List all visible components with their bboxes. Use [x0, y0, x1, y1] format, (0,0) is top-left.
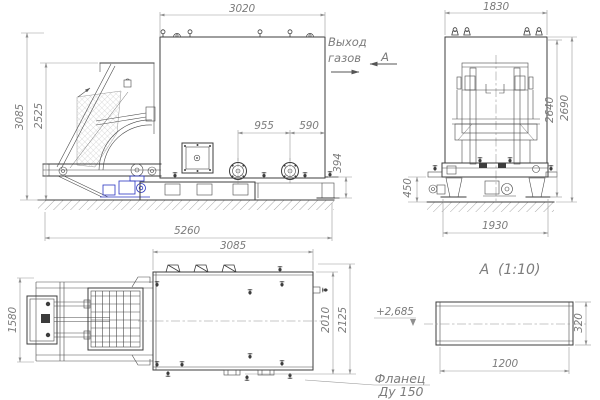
- grating: [88, 288, 143, 350]
- dim-1830: 1830: [483, 1, 509, 13]
- plan-view: 3085 1580 2010 2125: [7, 240, 356, 381]
- detail-title: А (1:10): [479, 262, 541, 278]
- dim-3085: 3085: [14, 104, 26, 130]
- dim-2010: 2010: [320, 307, 332, 333]
- drive-unit: [100, 176, 150, 197]
- side-view: 1830 2640 2690 450 1930: [402, 1, 577, 237]
- dim-955: 955: [254, 120, 274, 132]
- callout-text-2: Ду 150: [378, 384, 424, 399]
- view-a-arrow: А: [370, 50, 397, 64]
- furnace-body: [160, 37, 325, 178]
- gas-outlet-label: Выход газов: [328, 35, 367, 72]
- level-value: +2,685: [376, 306, 414, 318]
- base-frame: [140, 177, 339, 200]
- dim-320: 320: [573, 313, 585, 333]
- pipe-flange-left: [230, 158, 247, 184]
- ground-hatch: [38, 200, 334, 210]
- skip-rear: [457, 63, 533, 164]
- side-base: [428, 157, 557, 197]
- plan-dimensions: 3085 1580 2010 2125: [7, 240, 356, 374]
- plan-body: [138, 265, 328, 381]
- dim-3085-plan: 3085: [220, 240, 246, 252]
- dim-1200: 1200: [492, 358, 518, 370]
- dim-1930: 1930: [482, 220, 508, 232]
- engineering-drawing-canvas: 3020 3085 2525 955 590 394 5260 Выход га…: [0, 0, 600, 400]
- dim-2640: 2640: [544, 97, 556, 123]
- gas-outlet-text-1: Выход: [328, 35, 367, 49]
- view-a-letter: А: [380, 50, 389, 64]
- dim-450: 450: [402, 178, 414, 198]
- skip-hoist: [43, 63, 161, 197]
- ground-hatch-side: [427, 202, 554, 212]
- dim-590: 590: [299, 120, 319, 132]
- dim-3020: 3020: [229, 3, 255, 15]
- flange-callout: Фланец Ду 150: [305, 371, 430, 399]
- dim-2125: 2125: [337, 307, 349, 333]
- dim-394: 394: [332, 153, 344, 172]
- dim-5260: 5260: [174, 225, 200, 237]
- dim-1580: 1580: [7, 307, 19, 333]
- gas-outlet-text-2: газов: [328, 51, 361, 65]
- level-mark: +2,685: [374, 306, 416, 326]
- dim-2690: 2690: [559, 95, 571, 121]
- pipe-flange-right: [282, 158, 299, 184]
- drawing-svg: 3020 3085 2525 955 590 394 5260 Выход га…: [0, 0, 600, 400]
- access-door: [182, 143, 213, 173]
- clamp-bottom: [132, 355, 150, 365]
- flange-duct: [436, 302, 573, 345]
- front-view: 3020 3085 2525 955 590 394 5260: [14, 3, 352, 241]
- dim-2525: 2525: [33, 103, 45, 129]
